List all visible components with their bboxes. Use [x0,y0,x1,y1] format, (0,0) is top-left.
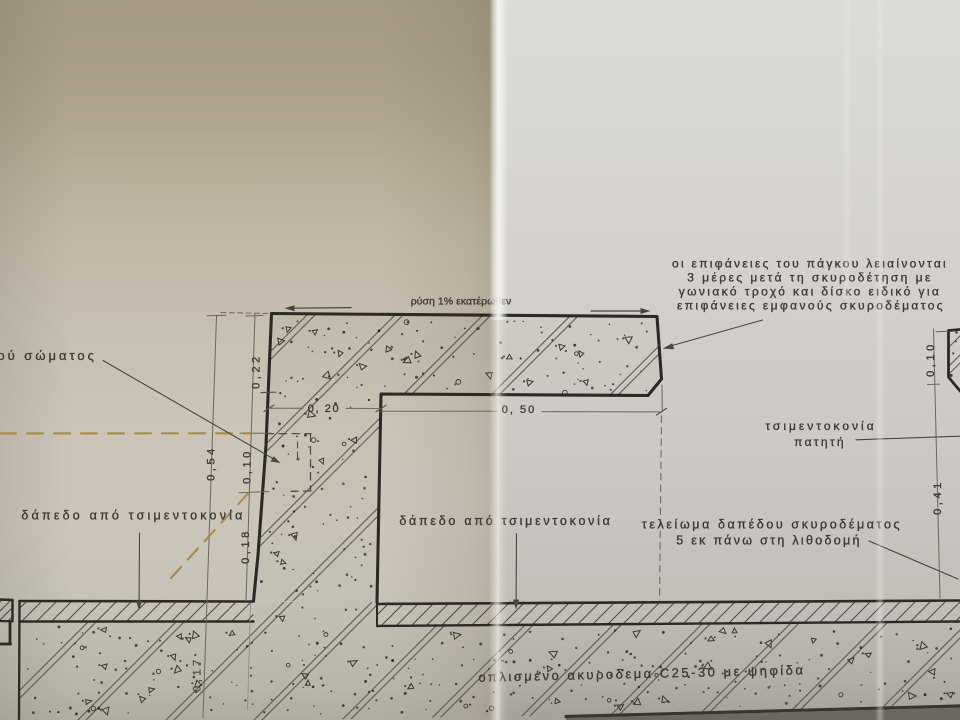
svg-text:0,17: 0,17 [192,656,204,692]
svg-text:3 μέρες μετά τη σκυροδέτηση με: 3 μέρες μετά τη σκυροδέτηση με [687,271,933,285]
svg-text:τσιμεντοκονία: τσιμεντοκονία [765,419,876,433]
svg-text:τελείωμα δαπέδου σκυροδέματος: τελείωμα δαπέδου σκυροδέματος [642,518,902,532]
svg-text:0,10: 0,10 [242,448,254,484]
svg-text:0,41: 0,41 [932,479,944,515]
svg-text:0,22: 0,22 [251,353,263,389]
svg-text:0,10: 0,10 [925,341,937,377]
svg-text:πατητή: πατητή [794,435,846,449]
svg-text:κού σώματος: κού σώματος [0,348,97,363]
svg-text:δάπεδο από τσιμεντοκονία: δάπεδο από τσιμεντοκονία [21,509,245,523]
svg-text:επιφάνειες εμφανούς σκυροδέματ: επιφάνειες εμφανούς σκυροδέματος [677,299,945,313]
svg-text:5 εκ πάνω στη λιθοδομή: 5 εκ πάνω στη λιθοδομή [676,534,862,548]
svg-text:γωνιακό τροχό και δίσκο ειδικό: γωνιακό τροχό και δίσκο ειδικό για [679,285,942,299]
svg-text:0, 20: 0, 20 [308,403,340,415]
svg-text:0,18: 0,18 [240,528,252,564]
svg-text:οι επιφάνειες του πάγκου λειαί: οι επιφάνειες του πάγκου λειαίνονται [672,257,948,271]
svg-text:0,54: 0,54 [206,445,218,481]
